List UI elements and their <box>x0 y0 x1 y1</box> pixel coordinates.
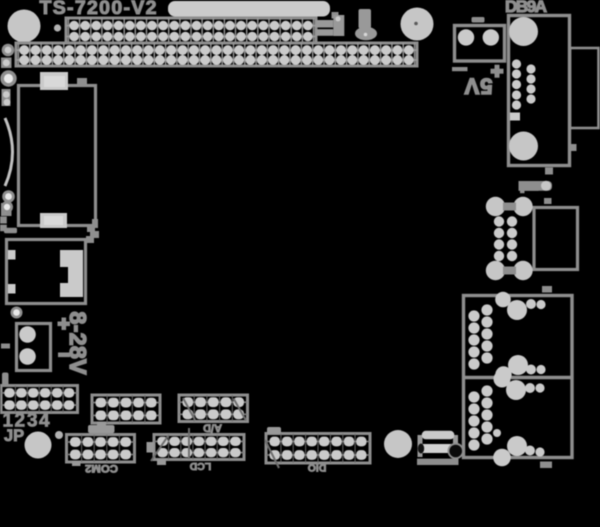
svg-text:4: 4 <box>39 411 50 432</box>
svg-text:DB9A: DB9A <box>505 0 547 16</box>
svg-text:8-28V: 8-28V <box>65 312 91 376</box>
svg-text:3: 3 <box>27 411 38 432</box>
svg-text:LCD: LCD <box>189 460 211 472</box>
svg-text:A/D: A/D <box>203 422 222 434</box>
svg-text:JP: JP <box>4 427 24 445</box>
svg-text:DIO: DIO <box>308 462 327 474</box>
svg-text:5V: 5V <box>464 74 492 99</box>
svg-text:COM2: COM2 <box>85 462 118 474</box>
